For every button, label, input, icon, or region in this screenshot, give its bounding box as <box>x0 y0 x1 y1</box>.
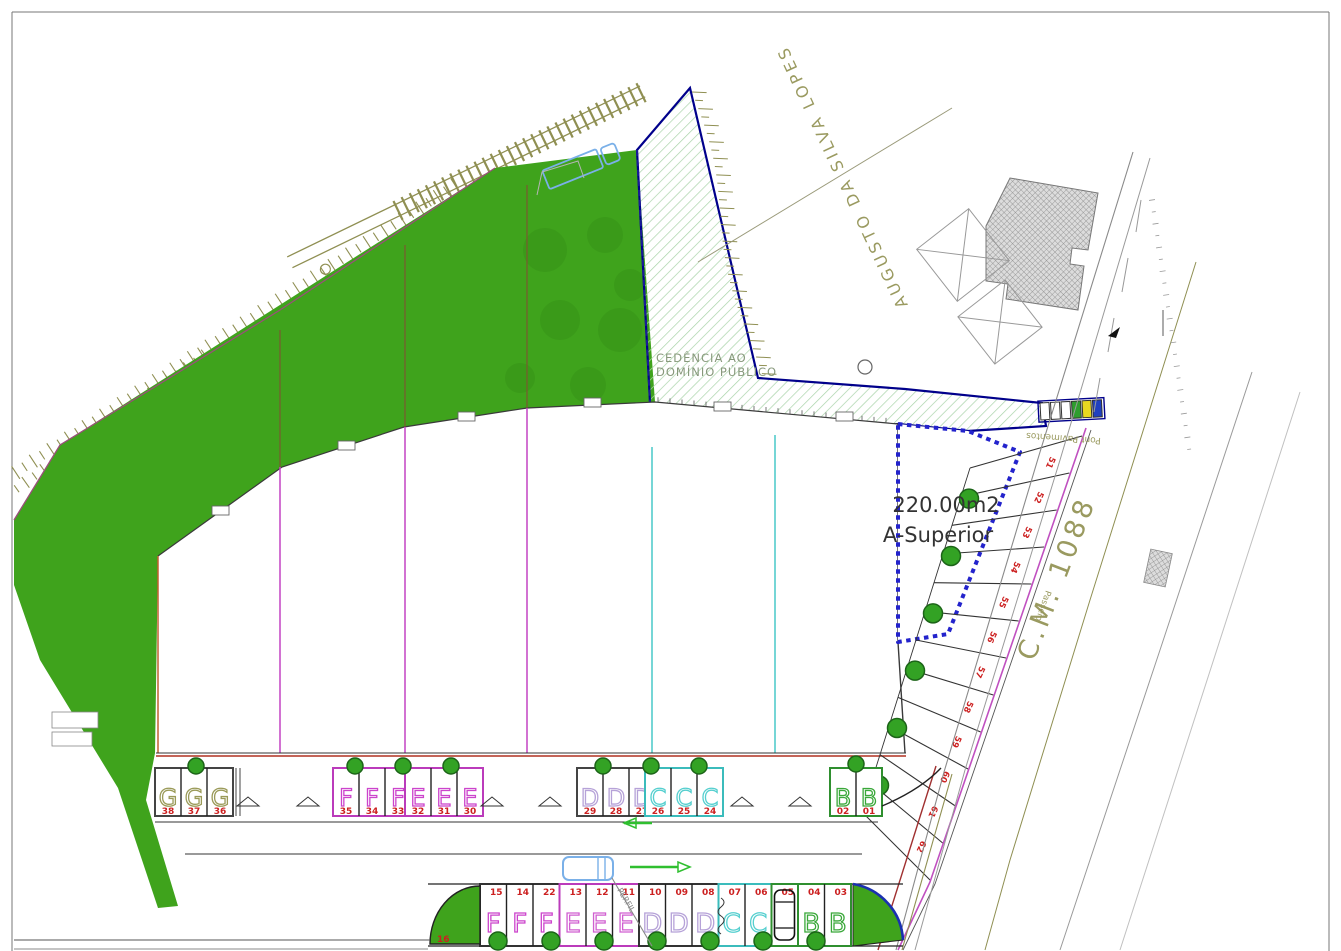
street-name-label: AUGUSTO DA SILVA LOPES <box>773 42 912 311</box>
arrow-marker <box>1108 327 1120 338</box>
stall-number: 07 <box>728 888 741 898</box>
bin-white <box>1050 402 1060 419</box>
sidewalk-segment <box>1122 258 1128 292</box>
tick <box>750 340 765 341</box>
stall-number: 29 <box>584 807 597 817</box>
tick <box>1159 259 1163 260</box>
stall-letter: B <box>829 909 847 939</box>
gate <box>714 402 731 411</box>
tree-canopy <box>505 363 535 393</box>
tree-icon <box>542 932 560 950</box>
stall-number: 33 <box>392 807 405 817</box>
tick <box>32 473 37 480</box>
tick <box>732 291 747 292</box>
tree-icon <box>648 932 666 950</box>
bin-white <box>1040 403 1050 420</box>
sidewalk-segment <box>1136 200 1141 232</box>
stall-number: 51 <box>1043 455 1057 470</box>
tick <box>1173 354 1177 355</box>
garage-row-top: G38G37G36F35F34F33E32E31E30D29D28D27C26C… <box>155 756 882 817</box>
tick <box>345 248 353 261</box>
stall-letter: C <box>723 909 741 939</box>
survey-circle <box>858 360 872 374</box>
gate <box>212 506 229 515</box>
tree-icon <box>395 758 411 774</box>
triangle-marker <box>539 797 561 806</box>
bin-white <box>1061 401 1071 418</box>
triangle-marker <box>731 797 753 806</box>
tick <box>338 256 343 264</box>
tick <box>725 258 740 259</box>
tick <box>718 191 733 192</box>
stall-number: 52 <box>1031 490 1045 505</box>
tree-icon <box>888 719 907 738</box>
stall-number: 10 <box>649 888 662 898</box>
tree-icon <box>347 758 363 774</box>
road-line <box>1060 372 1252 950</box>
tick <box>709 142 724 143</box>
tick <box>29 455 37 468</box>
tick <box>713 158 728 159</box>
tick <box>39 451 44 459</box>
triangle-marker <box>481 797 503 806</box>
tick <box>1187 449 1191 450</box>
triangle-marker <box>297 797 319 806</box>
bin-yellow <box>1082 400 1092 417</box>
tick <box>233 325 238 333</box>
car-icon <box>563 857 613 880</box>
tick <box>268 302 273 310</box>
tree-canopy <box>540 300 580 340</box>
tick <box>1174 366 1180 367</box>
tick <box>1163 295 1169 296</box>
tick <box>1167 318 1173 319</box>
stall-number: 01 <box>863 807 876 817</box>
tree-canopy <box>614 269 646 301</box>
cedencia-label-line1: CEDÊNCIA AO <box>656 350 747 365</box>
tick <box>381 225 389 238</box>
stall-number: 28 <box>610 807 623 817</box>
cedencia-area <box>637 88 1046 447</box>
tree-icon <box>701 932 719 950</box>
stall-number: 14 <box>516 888 529 898</box>
stall-number: 58 <box>961 699 975 714</box>
stall-number: 38 <box>162 807 175 817</box>
triangle-marker <box>789 797 811 806</box>
tree-canopy <box>523 228 567 272</box>
tick <box>391 221 396 229</box>
tick <box>1180 401 1184 402</box>
stall-number: 09 <box>675 888 688 898</box>
tick <box>1162 283 1166 284</box>
tick <box>22 477 30 488</box>
tick <box>723 241 738 242</box>
parcel-area-label: 220.00m2 <box>892 493 999 517</box>
gate <box>338 441 355 450</box>
gate <box>458 412 475 421</box>
road-slope-ticks <box>1149 200 1191 450</box>
tree-canopy <box>598 308 642 352</box>
utility-box <box>52 732 92 746</box>
stall-letter: E <box>565 909 581 939</box>
tick <box>692 92 707 93</box>
shed-outline <box>1144 549 1173 587</box>
stall-number: 32 <box>412 807 425 817</box>
road-line <box>985 262 1196 950</box>
bin-blue <box>1092 400 1102 417</box>
stall-number: 31 <box>438 807 451 817</box>
tick <box>14 485 19 492</box>
stall-number: 55 <box>996 594 1010 609</box>
stall-number: 36 <box>214 807 227 817</box>
stall-number: 13 <box>569 888 582 898</box>
tree-icon <box>595 758 611 774</box>
tick <box>728 274 743 275</box>
stall-number: 06 <box>755 888 768 898</box>
tree-icon <box>489 932 507 950</box>
tree-icon <box>754 932 772 950</box>
stall-number: 12 <box>596 888 609 898</box>
tick <box>1177 378 1181 379</box>
stall-number: 30 <box>464 807 477 817</box>
tick <box>373 233 378 241</box>
tree-icon <box>807 932 825 950</box>
tick <box>1166 307 1170 308</box>
tick <box>215 336 220 344</box>
stall-letter: D <box>669 909 689 939</box>
stall-number: 53 <box>1019 525 1033 540</box>
tick <box>356 244 361 252</box>
tick <box>363 236 371 249</box>
stall-number: 04 <box>808 888 821 898</box>
tick <box>1156 247 1162 248</box>
stall-number: 35 <box>340 807 353 817</box>
stall-number: 34 <box>366 807 379 817</box>
tick <box>1149 200 1155 201</box>
tick <box>1160 271 1166 272</box>
tree-icon <box>848 756 864 772</box>
tree-icon <box>942 547 961 566</box>
tree-icon <box>906 661 925 680</box>
arrow-head <box>678 862 690 872</box>
tick <box>1177 389 1183 390</box>
stall-number: 15 <box>490 888 503 898</box>
tick <box>720 208 735 209</box>
tick <box>698 109 713 110</box>
stall-number: 22 <box>543 888 556 898</box>
stall-number: 26 <box>652 807 665 817</box>
tree-icon <box>691 758 707 774</box>
tick <box>1153 223 1159 224</box>
stall-number: 08 <box>702 888 715 898</box>
stall-number: 25 <box>678 807 691 817</box>
tick <box>1170 330 1174 331</box>
tick <box>738 307 753 308</box>
tree-icon <box>188 758 204 774</box>
site-plan-drawing: 515253545556575859606162G38G37G36F35F34F… <box>0 0 1341 951</box>
road-edge-olive <box>902 774 952 950</box>
stall-number: 54 <box>1008 560 1022 575</box>
shed-hatched <box>1144 549 1173 587</box>
tick <box>1181 413 1187 414</box>
tree-icon <box>443 758 459 774</box>
stall-number: 37 <box>188 807 201 817</box>
tick <box>704 125 719 126</box>
direction-arrow-left-icon <box>624 818 652 828</box>
tick <box>12 466 20 479</box>
stall-letter: E <box>618 909 634 939</box>
garage-row-bottom: F15F14F22E13E12E11D10D09D08C07C0605B04B0… <box>428 878 903 950</box>
tick <box>303 279 308 287</box>
tree-icon <box>643 758 659 774</box>
tick <box>285 290 290 298</box>
cedencia-label-line2: DOMÍNIO PÚBLICO <box>656 364 777 379</box>
tick <box>1155 235 1159 236</box>
tree-icon <box>924 604 943 623</box>
tick <box>756 357 771 358</box>
tick <box>1184 437 1190 438</box>
gate <box>584 398 601 407</box>
tick <box>716 175 731 176</box>
stall-number: 03 <box>834 888 847 898</box>
stall-number: 24 <box>704 807 717 817</box>
tree-canopy <box>587 217 623 253</box>
gate <box>836 412 853 421</box>
tick <box>1184 425 1188 426</box>
tick <box>250 313 255 321</box>
road-label: C.M. 1088 <box>1012 492 1103 664</box>
corner-stall-number: 16 <box>437 935 450 945</box>
parcel-class-label: A-Superior <box>883 523 994 547</box>
stall-letter: F <box>512 909 527 939</box>
utility-box <box>52 712 98 728</box>
tick <box>1152 212 1156 213</box>
direction-arrow-right-icon <box>630 862 690 872</box>
stall-number: 02 <box>837 807 850 817</box>
tick <box>721 225 736 226</box>
tick <box>744 324 759 325</box>
building-hatched <box>986 178 1098 310</box>
tree-icon <box>595 932 613 950</box>
road-line <box>1120 392 1300 950</box>
tick <box>22 463 27 471</box>
site-plan-canvas: 515253545556575859606162G38G37G36F35F34F… <box>0 0 1341 951</box>
